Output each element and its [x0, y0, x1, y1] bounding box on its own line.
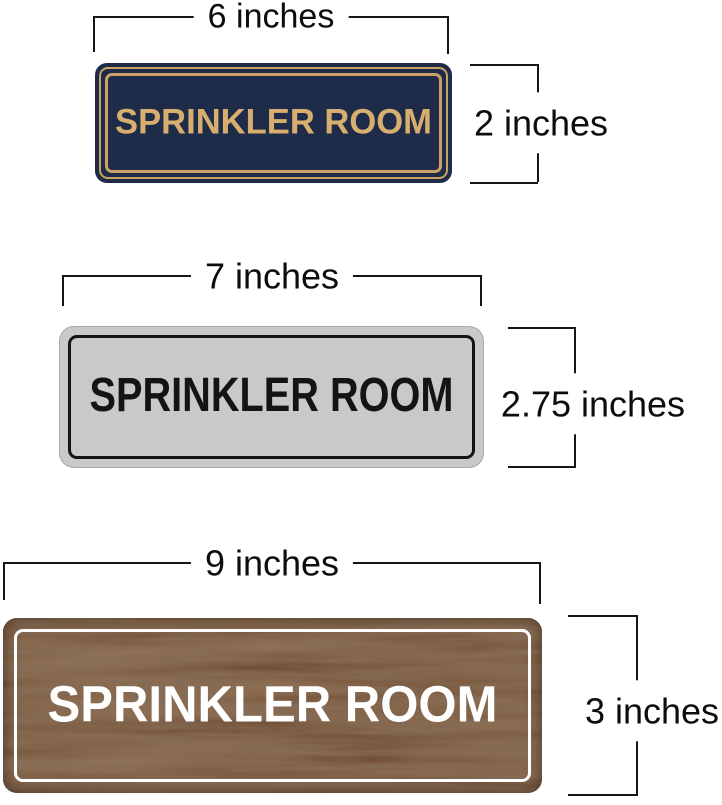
- width-dimension-label: 9 inches: [191, 542, 353, 583]
- dimension-tick-right: [480, 275, 482, 306]
- dimension-tick-left: [62, 275, 64, 306]
- dimension-tick-left: [3, 562, 5, 600]
- sprinkler-sign-silver-7x275: SPRINKLER ROOM: [60, 327, 483, 467]
- height-dimension-label: 3 inches: [581, 680, 722, 741]
- height-dimension-label: 2.75 inches: [497, 373, 689, 434]
- width-dimension-label: 6 inches: [194, 0, 349, 37]
- dimension-tick-left: [93, 16, 95, 52]
- dimension-tick-bottom: [508, 466, 576, 468]
- sign-label: SPRINKLER ROOM: [90, 369, 454, 422]
- sign-label: SPRINKLER ROOM: [48, 675, 498, 732]
- sign-label-graphic: SPRINKLER ROOM: [95, 63, 452, 183]
- dimension-tick-right: [539, 562, 541, 604]
- dimension-tick-right: [447, 16, 449, 54]
- sign-label: SPRINKLER ROOM: [115, 102, 432, 141]
- dimension-tick-top: [568, 615, 638, 617]
- height-dimension-label: 2 inches: [470, 92, 612, 153]
- product-dimension-diagram: 6 inches SPRINKLER ROOM 2 inches 7 inche…: [0, 0, 722, 805]
- dimension-tick-bottom: [470, 182, 538, 184]
- sign-label-graphic: SPRINKLER ROOM: [60, 327, 483, 467]
- sprinkler-sign-wood-9x3: SPRINKLER ROOM: [3, 618, 542, 793]
- sign-label-graphic: SPRINKLER ROOM: [3, 618, 542, 793]
- dimension-tick-top: [470, 64, 538, 66]
- dimension-tick-top: [508, 327, 576, 329]
- dimension-tick-bottom: [568, 794, 638, 796]
- sprinkler-sign-navy-6x2: SPRINKLER ROOM: [95, 63, 452, 183]
- width-dimension-label: 7 inches: [191, 255, 353, 296]
